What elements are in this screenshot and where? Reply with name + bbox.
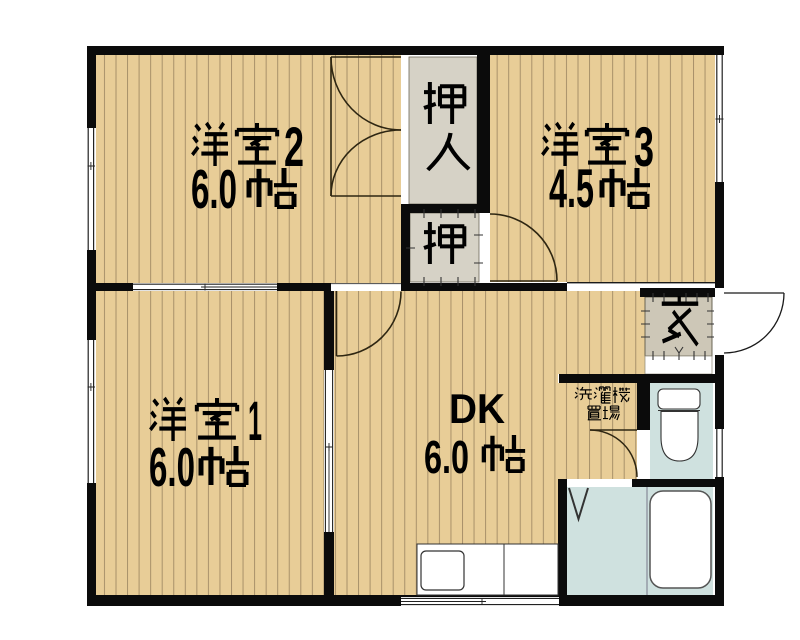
svg-text:2: 2 xyxy=(284,115,304,178)
svg-text:4.5: 4.5 xyxy=(549,157,594,219)
svg-text:DK: DK xyxy=(449,385,505,432)
svg-text:6.0: 6.0 xyxy=(424,431,469,483)
svg-text:6.0: 6.0 xyxy=(149,436,195,498)
svg-text:6.0: 6.0 xyxy=(191,158,237,220)
svg-text:1: 1 xyxy=(248,389,262,452)
